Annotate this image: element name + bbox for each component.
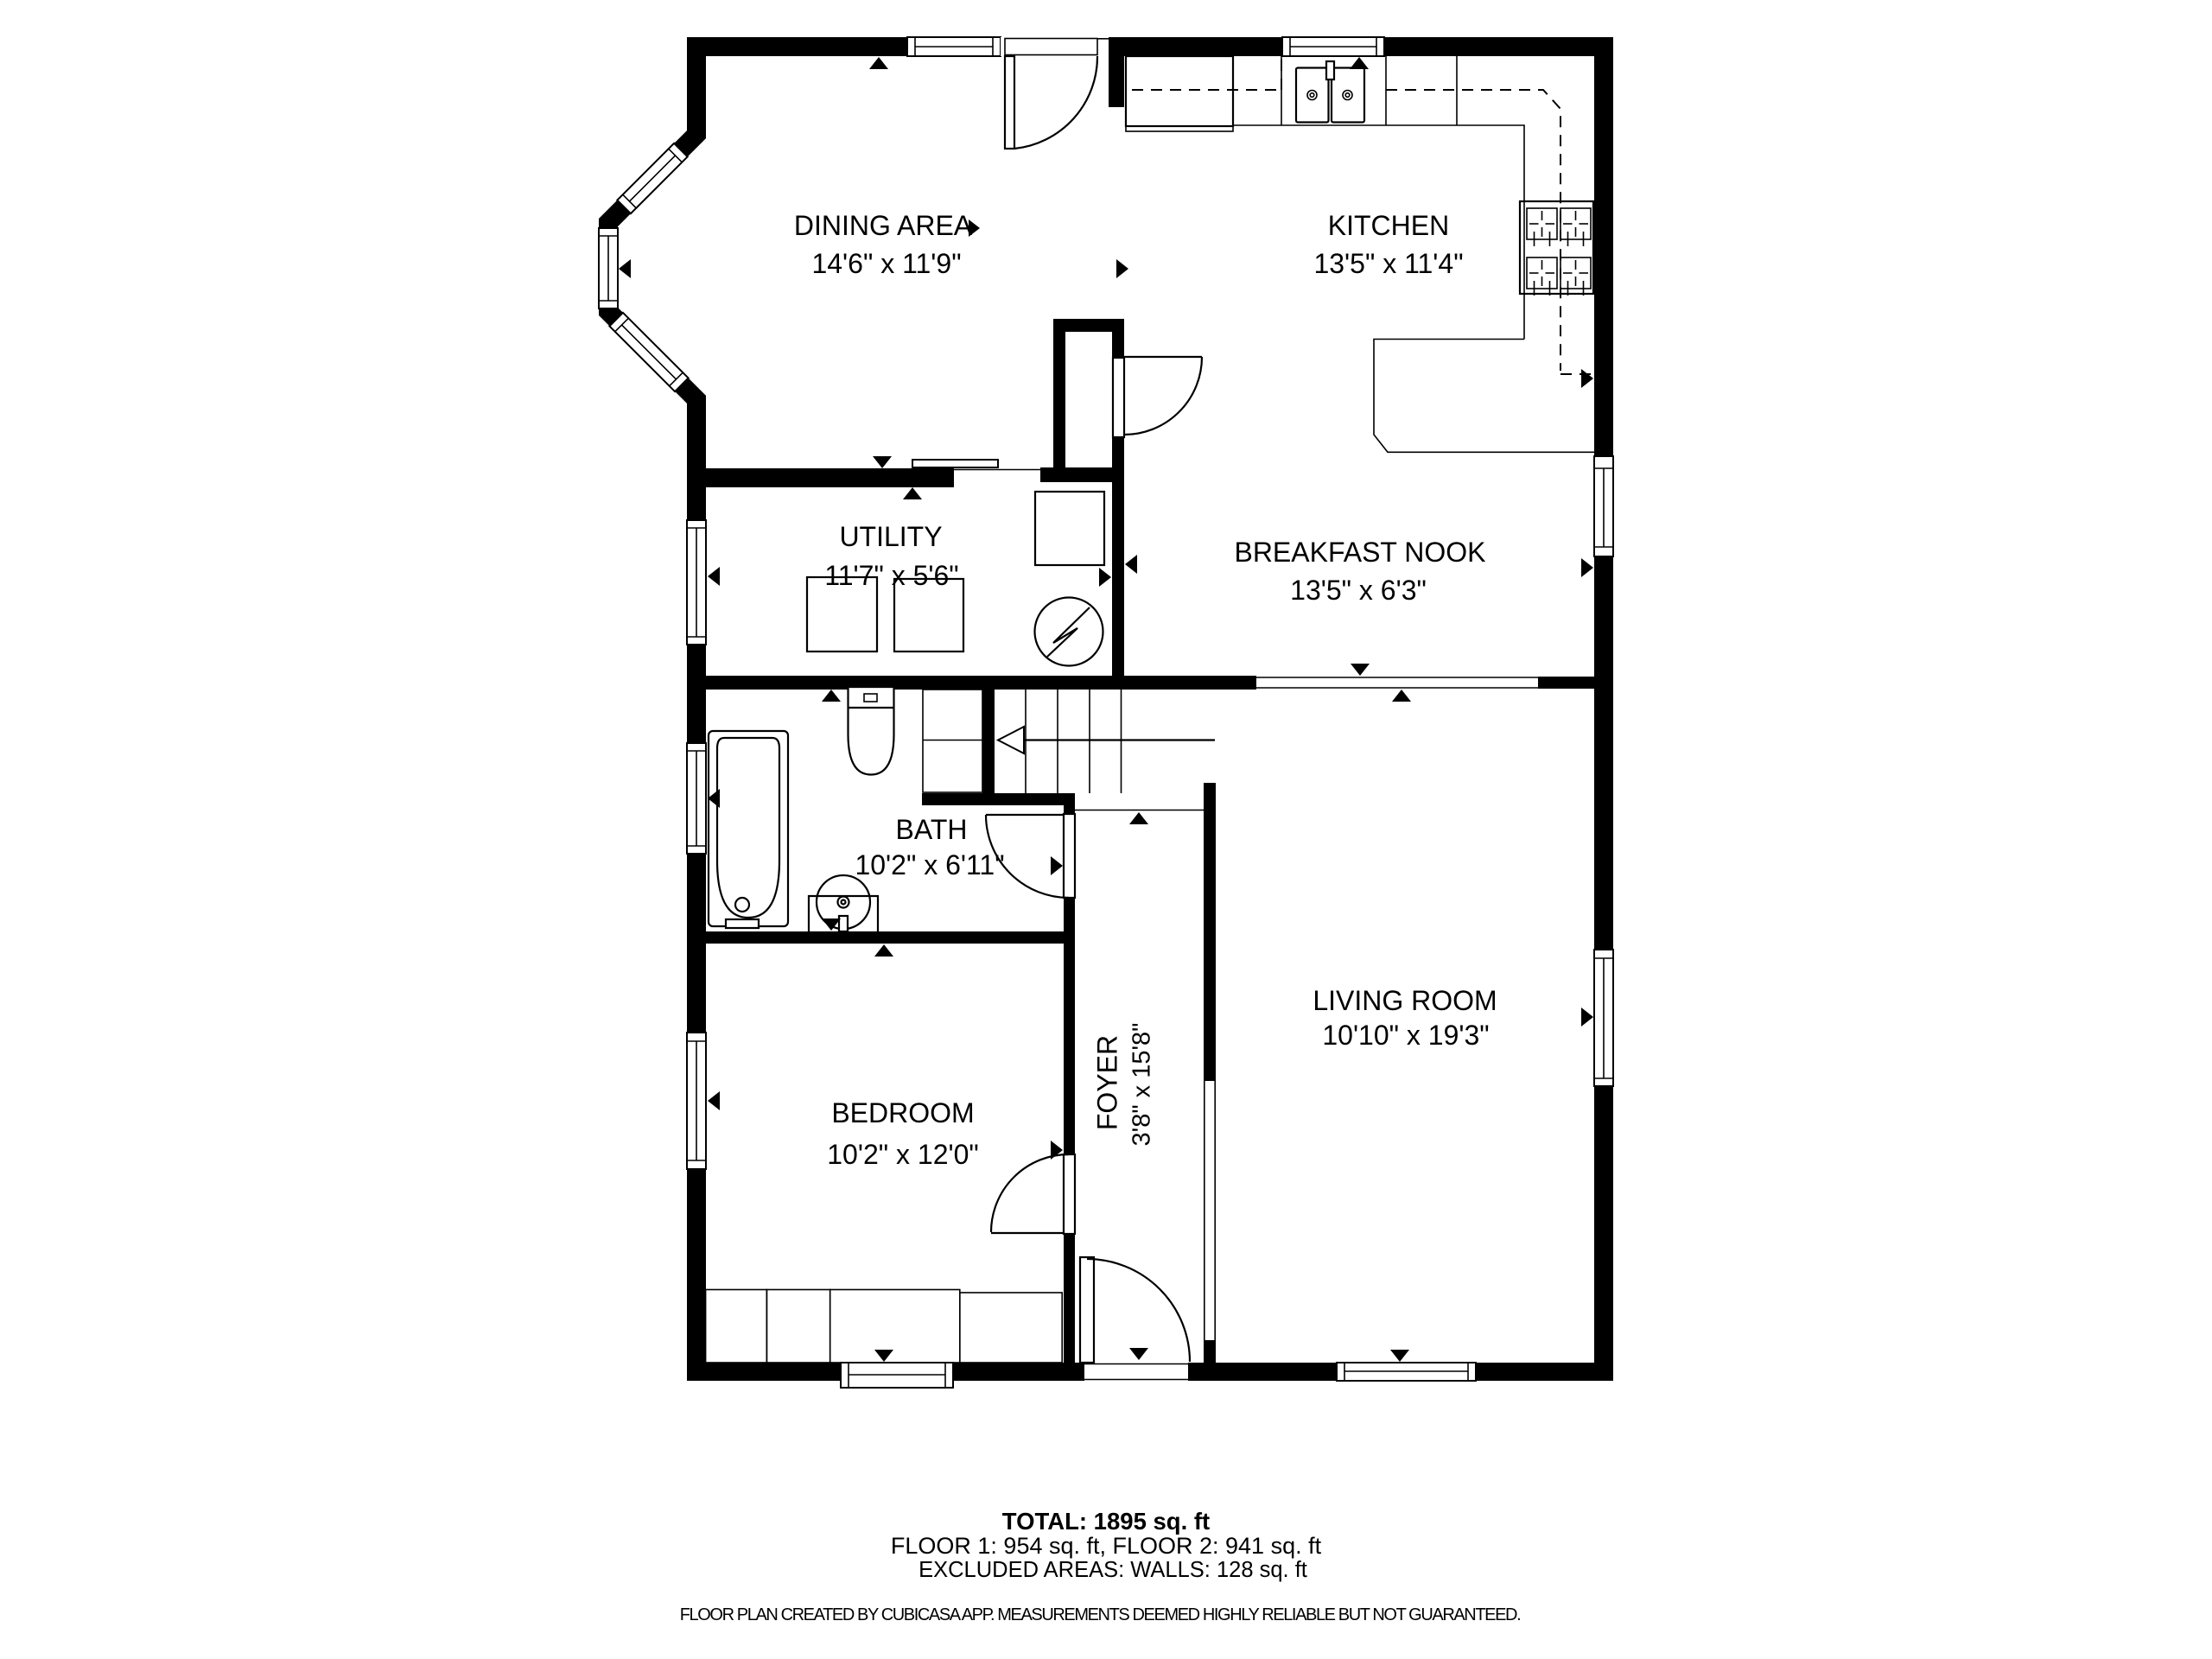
svg-text:10'10" x 19'3": 10'10" x 19'3": [1322, 1020, 1489, 1051]
svg-text:11'7" x 5'6": 11'7" x 5'6": [824, 560, 958, 591]
svg-text:3'8" x 15'8": 3'8" x 15'8": [1128, 1023, 1156, 1147]
svg-text:10'2" x 12'0": 10'2" x 12'0": [827, 1139, 979, 1170]
svg-text:13'5" x 11'4": 13'5" x 11'4": [1313, 248, 1463, 279]
svg-text:14'6" x 11'9": 14'6" x 11'9": [811, 248, 961, 279]
svg-text:BEDROOM: BEDROOM: [831, 1097, 974, 1128]
svg-text:FLOOR PLAN CREATED BY CUBICASA: FLOOR PLAN CREATED BY CUBICASA APP. MEAS…: [680, 1605, 1521, 1624]
svg-text:KITCHEN: KITCHEN: [1328, 210, 1449, 241]
svg-text:LIVING ROOM: LIVING ROOM: [1313, 985, 1497, 1016]
svg-text:13'5" x 6'3": 13'5" x 6'3": [1290, 575, 1427, 606]
svg-text:BATH: BATH: [896, 814, 968, 845]
svg-text:BREAKFAST NOOK: BREAKFAST NOOK: [1234, 537, 1485, 568]
svg-text:DINING AREA: DINING AREA: [794, 210, 973, 241]
svg-text:EXCLUDED AREAS: WALLS: 128 sq.: EXCLUDED AREAS: WALLS: 128 sq. ft: [918, 1558, 1307, 1582]
svg-text:FLOOR 1: 954 sq. ft, FLOOR 2:: FLOOR 1: 954 sq. ft, FLOOR 2: 941 sq. ft: [891, 1533, 1322, 1559]
svg-text:10'2" x 6'11": 10'2" x 6'11": [855, 849, 1004, 880]
svg-text:UTILITY: UTILITY: [839, 521, 942, 552]
svg-text:TOTAL: 1895 sq. ft: TOTAL: 1895 sq. ft: [1002, 1508, 1210, 1535]
svg-text:FOYER: FOYER: [1091, 1035, 1122, 1130]
